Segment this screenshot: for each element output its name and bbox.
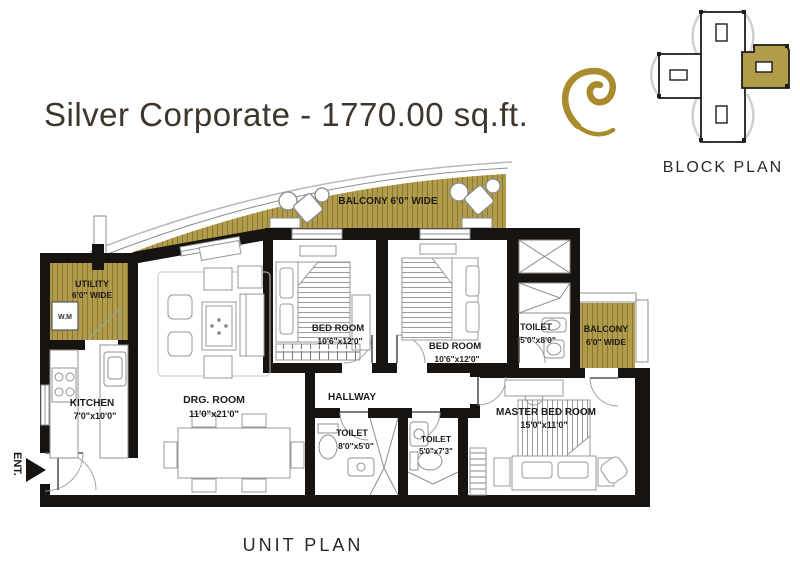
page-title: Silver Corporate - 1770.00 sq.ft. [44, 96, 528, 133]
bedroom1-dims: 10'6"x12'0" [317, 336, 362, 346]
master-bedroom-dims: 15'0"x11'0" [520, 420, 567, 430]
entrance-label: ENT. [11, 452, 23, 476]
hallway-label: HALLWAY [328, 392, 376, 403]
toilet3-dims: 5'0"x7'3" [419, 447, 453, 456]
block-plan-label: BLOCK PLAN [663, 159, 783, 176]
flourish-icon [565, 71, 613, 134]
entrance-arrow-icon [26, 458, 46, 482]
floor-plan-page: Silver Corporate - 1770.00 sq.ft. [0, 0, 800, 565]
unit-plan: W.M [11, 162, 650, 555]
balcony-right-label: BALCONY [584, 324, 629, 334]
bedroom2-dims: 10'6"x12'0" [434, 354, 479, 364]
living-area-furniture [158, 241, 270, 378]
utility-dims: 6'0" WIDE [72, 290, 112, 300]
dining-set [164, 414, 304, 492]
balcony-right-dims: 6'0" WIDE [586, 337, 626, 347]
toilet3-label: TOILET [421, 434, 452, 444]
bedroom2-furniture [402, 244, 479, 340]
drg-room-label: DRG. ROOM [183, 394, 245, 406]
washing-machine-label: W.M [58, 314, 72, 321]
bedroom1-label: BED ROOM [312, 323, 364, 334]
page-title-group: Silver Corporate - 1770.00 sq.ft. [44, 71, 613, 134]
entrance-marker: ENT. [11, 452, 46, 482]
master-bedroom-furniture [470, 380, 629, 495]
stove [52, 368, 76, 402]
bedroom2-label: BED ROOM [429, 341, 481, 352]
floor-plan-svg: Silver Corporate - 1770.00 sq.ft. [0, 0, 800, 565]
kitchen-dims: 7'0"x10'0" [74, 411, 117, 421]
master-bedroom-label: MASTER BED ROOM [496, 407, 596, 418]
toilet1-label: TOILET [520, 322, 552, 332]
toilet2-label: TOILET [336, 428, 368, 438]
unit-plan-label: UNIT PLAN [243, 535, 364, 555]
drg-room-dims: 11'0"x21'0" [189, 409, 239, 420]
washing-machine: W.M [52, 302, 78, 330]
toilet2-dims: 8'0"x5'0" [338, 441, 374, 451]
balcony-top-label: BALCONY 6'0" WIDE [338, 196, 438, 207]
utility-label: UTILITY [75, 279, 109, 289]
kitchen-label: KITCHEN [70, 398, 114, 409]
toilet1-fixtures [519, 283, 570, 358]
service-shaft [519, 240, 570, 273]
block-plan: BLOCK PLAN [651, 10, 789, 176]
toilet1-dims: 5'0"x8'0" [520, 335, 556, 345]
